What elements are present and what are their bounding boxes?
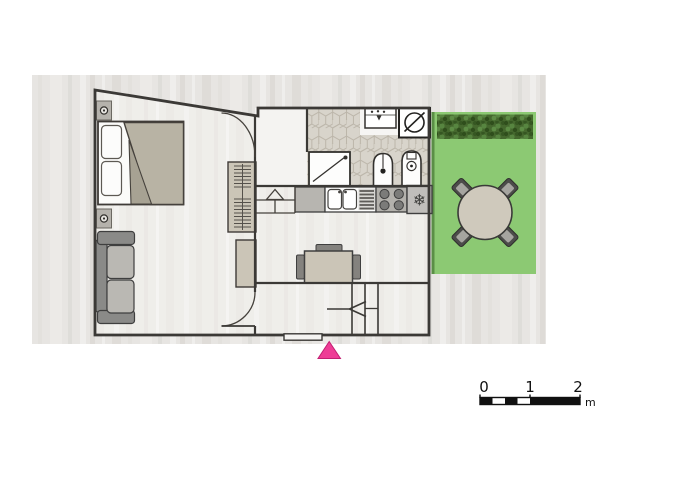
washbasin-icon <box>365 109 396 129</box>
sofa-cushion-top <box>107 246 134 279</box>
dish-drainer-icon <box>359 189 376 211</box>
kitchen-sink-icon <box>325 187 376 212</box>
kitchen-counter: ❄ <box>295 186 432 214</box>
double-bed <box>98 122 184 205</box>
floor-plan-canvas: ❄ <box>0 0 700 500</box>
dining-chair-right <box>353 255 361 279</box>
scale-bar: 0 1 2 m <box>479 378 595 409</box>
garden-dining-set <box>451 178 519 248</box>
scale-tick-0: 0 <box>479 378 489 396</box>
wall-light-bottom <box>97 209 112 228</box>
washing-machine-icon <box>399 108 430 138</box>
hall-floor <box>255 108 307 186</box>
pillow-top <box>102 126 122 159</box>
entrance-threshold <box>284 334 322 340</box>
entrance-marker <box>318 342 341 359</box>
floor-plan-page: ❄ <box>0 0 700 500</box>
dining-table <box>305 251 353 283</box>
scale-tick-2: 2 <box>573 378 583 396</box>
snowflake-icon: ❄ <box>413 191 426 210</box>
scale-tick-1: 1 <box>525 378 535 396</box>
pillow-bottom <box>102 162 122 196</box>
shower-head-icon <box>344 156 348 160</box>
wardrobe <box>228 162 256 232</box>
garden-table <box>458 186 512 240</box>
dining-chair-left <box>297 255 305 279</box>
sofa <box>96 232 135 324</box>
toilet-icon <box>374 154 393 186</box>
scale-unit-label: m <box>585 396 596 409</box>
wall-light-top <box>97 101 112 120</box>
bidet-icon <box>402 151 421 185</box>
stove-icon <box>376 187 407 212</box>
dining-set <box>297 245 361 284</box>
corner-cabinet <box>295 187 325 212</box>
sofa-cushion-bottom <box>107 280 134 313</box>
shower-icon <box>309 152 350 186</box>
sofa-armrest-top <box>98 232 135 245</box>
cabinet <box>236 240 256 287</box>
sofa-back <box>96 240 107 312</box>
hedge <box>437 115 533 140</box>
